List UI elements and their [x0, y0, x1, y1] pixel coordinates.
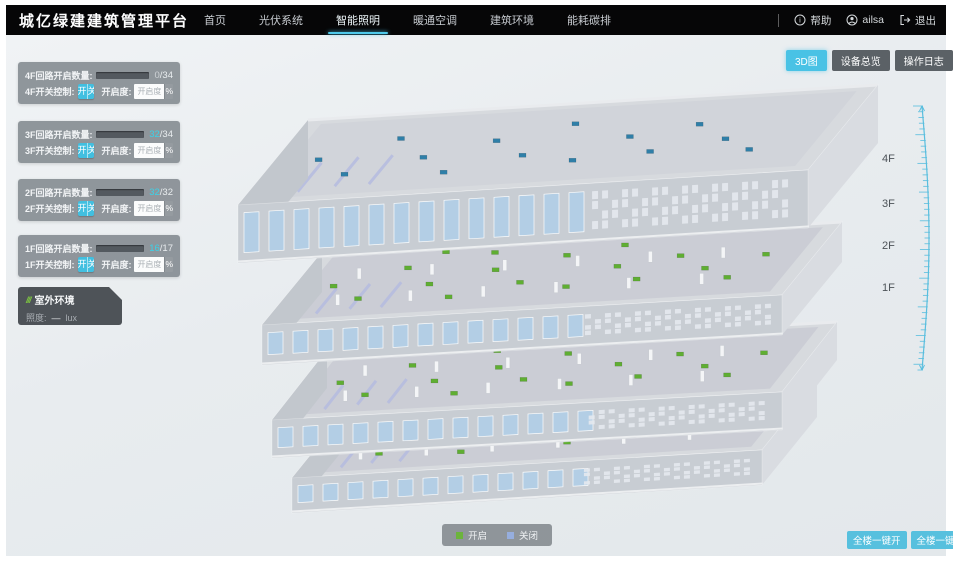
dimmer-label: 开启度:	[101, 258, 131, 271]
logout-label: 退出	[915, 13, 936, 28]
legend-item-off: 关闭	[507, 528, 538, 542]
percent-unit: %	[164, 257, 173, 272]
circuit-count-value: 0/34	[154, 70, 173, 81]
dimmer-input[interactable]	[134, 84, 164, 99]
bulk-button-group: 全楼一键开 全楼一键关	[847, 531, 953, 549]
switch-off-button[interactable]: 关	[88, 84, 95, 99]
dimmer-input[interactable]	[134, 201, 164, 216]
switch-control-row: 2F开关控制: 开 关 开启度: %	[25, 200, 173, 216]
outdoor-env-title: 室外环境	[35, 292, 75, 307]
lights-legend: 开启 关闭	[442, 524, 552, 546]
nav-item-smart-lighting[interactable]: 智能照明	[334, 8, 382, 32]
illuminance-label: 照度:	[26, 311, 47, 324]
circuit-progress-bar	[96, 189, 145, 196]
all-on-button[interactable]: 全楼一键开	[847, 531, 907, 549]
dimmer-label: 开启度:	[101, 202, 131, 215]
slashes-icon: ///	[26, 295, 31, 305]
view-3d-button[interactable]: 3D图	[786, 50, 827, 71]
nav-item-pv-system[interactable]: 光伏系统	[257, 8, 305, 32]
legend-item-on: 开启	[456, 528, 487, 542]
page-title: 城亿绿建建筑管理平台	[19, 10, 189, 31]
illuminance-unit: lux	[66, 313, 78, 323]
dimmer-input[interactable]	[134, 143, 164, 158]
help-icon: i	[794, 14, 806, 26]
switch-control-label: 1F开关控制:	[25, 258, 75, 271]
circuit-progress-bar	[96, 72, 150, 79]
percent-unit: %	[164, 84, 173, 99]
nav-item-home[interactable]: 首页	[202, 8, 228, 32]
switch-off-button[interactable]: 关	[88, 257, 95, 272]
floor-panel-3f: 3F回路开启数量: 32/34 3F开关控制: 开 关 开启度: %	[18, 121, 180, 163]
help-label: 帮助	[810, 13, 831, 28]
switch-on-button[interactable]: 开	[78, 84, 88, 99]
header-right: i 帮助 ailsa 退出	[778, 5, 936, 35]
floor-panel-1f: 1F回路开启数量: 16/17 1F开关控制: 开 关 开启度: %	[18, 235, 180, 277]
switch-off-button[interactable]: 关	[88, 143, 95, 158]
switch-on-button[interactable]: 开	[78, 201, 88, 216]
switch-control-label: 3F开关控制:	[25, 144, 75, 157]
device-overview-button[interactable]: 设备总览	[832, 50, 890, 71]
floor-marker-4f[interactable]: 4F	[882, 153, 895, 165]
floor-panel-2f: 2F回路开启数量: 32/32 2F开关控制: 开 关 开启度: %	[18, 179, 180, 221]
user-menu[interactable]: ailsa	[846, 14, 884, 26]
circuit-count-label: 4F回路开启数量:	[25, 69, 93, 82]
dimmer-label: 开启度:	[101, 144, 131, 157]
view-button-group: 3D图 设备总览 操作日志	[786, 50, 953, 71]
switch-group: 开 关	[78, 143, 95, 158]
percent-unit: %	[164, 201, 173, 216]
logout-button[interactable]: 退出	[899, 13, 936, 28]
circuit-count-label: 3F回路开启数量:	[25, 128, 93, 141]
nav-item-energy-carbon[interactable]: 能耗碳排	[565, 8, 613, 32]
switch-on-button[interactable]: 开	[78, 143, 88, 158]
all-off-button[interactable]: 全楼一键关	[911, 531, 953, 549]
circuit-count-value: 32/34	[149, 129, 173, 140]
switch-group: 开 关	[78, 201, 95, 216]
zoom-ruler[interactable]	[908, 100, 938, 376]
circuit-count-row: 1F回路开启数量: 16/17	[25, 240, 173, 256]
switch-on-button[interactable]: 开	[78, 257, 88, 272]
operation-log-button[interactable]: 操作日志	[895, 50, 953, 71]
switch-control-label: 2F开关控制:	[25, 202, 75, 215]
app-window: 城亿绿建建筑管理平台 首页 光伏系统 智能照明 暖通空调 建筑环境 能耗碳排 i…	[0, 0, 953, 564]
dimmer-input[interactable]	[134, 257, 164, 272]
off-label: 关闭	[519, 528, 538, 542]
off-swatch	[507, 532, 514, 539]
switch-group: 开 关	[78, 84, 95, 99]
circuit-count-label: 1F回路开启数量:	[25, 242, 93, 255]
header-divider	[778, 14, 779, 27]
svg-text:i: i	[800, 16, 802, 25]
switch-control-row: 3F开关控制: 开 关 开启度: %	[25, 142, 173, 158]
main-nav: 首页 光伏系统 智能照明 暖通空调 建筑环境 能耗碳排	[202, 5, 613, 35]
on-swatch	[456, 532, 463, 539]
dimmer-label: 开启度:	[101, 85, 131, 98]
circuit-progress-bar	[96, 245, 145, 252]
switch-off-button[interactable]: 关	[88, 201, 95, 216]
circuit-progress-bar	[96, 131, 145, 138]
nav-item-building-env[interactable]: 建筑环境	[488, 8, 536, 32]
circuit-count-row: 4F回路开启数量: 0/34	[25, 67, 173, 83]
circuit-count-row: 3F回路开启数量: 32/34	[25, 126, 173, 142]
circuit-count-value: 32/32	[149, 187, 173, 198]
switch-control-label: 4F开关控制:	[25, 85, 75, 98]
user-name: ailsa	[862, 14, 884, 26]
floor-panel-4f: 4F回路开启数量: 0/34 4F开关控制: 开 关 开启度: %	[18, 62, 180, 104]
user-icon	[846, 14, 858, 26]
floor-marker-3f[interactable]: 3F	[882, 198, 895, 210]
circuit-count-label: 2F回路开启数量:	[25, 186, 93, 199]
floor-marker-1f[interactable]: 1F	[882, 282, 895, 294]
switch-group: 开 关	[78, 257, 95, 272]
illuminance-value: —	[52, 313, 61, 323]
on-label: 开启	[468, 528, 487, 542]
floor-marker-2f[interactable]: 2F	[882, 240, 895, 252]
logout-icon	[899, 14, 911, 26]
help-button[interactable]: i 帮助	[794, 13, 831, 28]
top-bar: 城亿绿建建筑管理平台 首页 光伏系统 智能照明 暖通空调 建筑环境 能耗碳排 i…	[6, 5, 946, 35]
circuit-count-value: 16/17	[149, 243, 173, 254]
percent-unit: %	[164, 143, 173, 158]
switch-control-row: 1F开关控制: 开 关 开启度: %	[25, 256, 173, 272]
circuit-count-row: 2F回路开启数量: 32/32	[25, 184, 173, 200]
outdoor-env-panel: /// 室外环境 照度: — lux	[18, 287, 122, 325]
switch-control-row: 4F开关控制: 开 关 开启度: %	[25, 83, 173, 99]
nav-item-hvac[interactable]: 暖通空调	[411, 8, 459, 32]
